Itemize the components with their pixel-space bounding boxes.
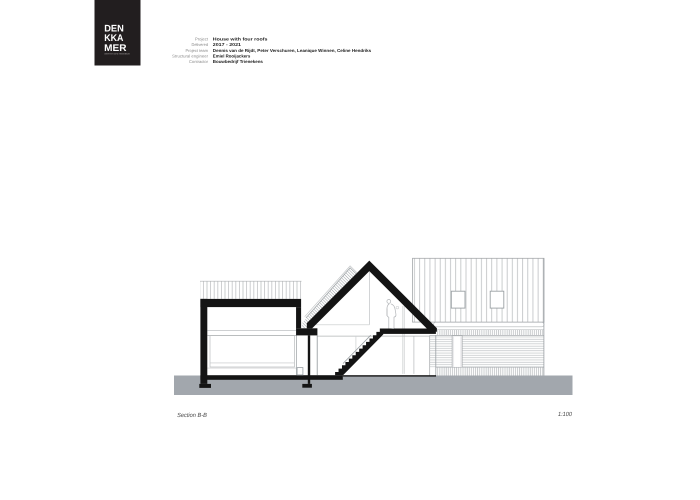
svg-text:Dennis van de Rijdt, Peter Ver: Dennis van de Rijdt, Peter Verschuren, L…: [213, 48, 372, 53]
svg-text:2017 - 2021: 2017 - 2021: [213, 42, 242, 47]
svg-text:Project: Project: [195, 36, 209, 41]
svg-text:Structural engineer: Structural engineer: [172, 54, 209, 59]
svg-text:ARCHITECTUUR & STEDENBOUW: ARCHITECTUUR & STEDENBOUW: [104, 53, 129, 56]
svg-text:Emiel Rooijackers: Emiel Rooijackers: [213, 54, 251, 59]
svg-text:Delivered: Delivered: [192, 42, 209, 47]
svg-text:1:100: 1:100: [558, 411, 573, 418]
svg-text:MER: MER: [104, 43, 126, 54]
svg-text:Contractor: Contractor: [189, 59, 209, 64]
svg-text:Section B-B: Section B-B: [177, 412, 207, 419]
svg-text:House with four roofs: House with four roofs: [213, 36, 268, 41]
svg-text:Bouwbedrijf Trienekens: Bouwbedrijf Trienekens: [213, 59, 264, 64]
svg-text:Project team: Project team: [186, 48, 209, 53]
